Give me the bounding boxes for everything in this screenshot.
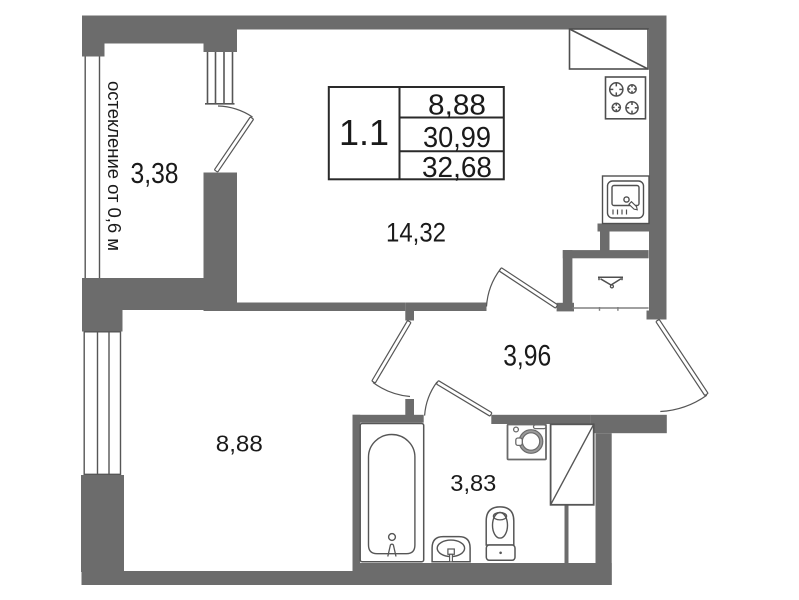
svg-text:3,96: 3,96 <box>503 339 551 372</box>
svg-text:8,88: 8,88 <box>428 90 486 122</box>
svg-text:8,88: 8,88 <box>216 431 263 457</box>
svg-text:3,38: 3,38 <box>131 158 179 190</box>
svg-text:32,68: 32,68 <box>422 152 492 184</box>
svg-text:1.1: 1.1 <box>339 112 389 153</box>
svg-text:остекление от 0,6 м: остекление от 0,6 м <box>104 81 125 251</box>
svg-text:3,83: 3,83 <box>450 470 496 496</box>
svg-text:14,32: 14,32 <box>386 217 446 247</box>
svg-text:30,99: 30,99 <box>423 122 491 154</box>
